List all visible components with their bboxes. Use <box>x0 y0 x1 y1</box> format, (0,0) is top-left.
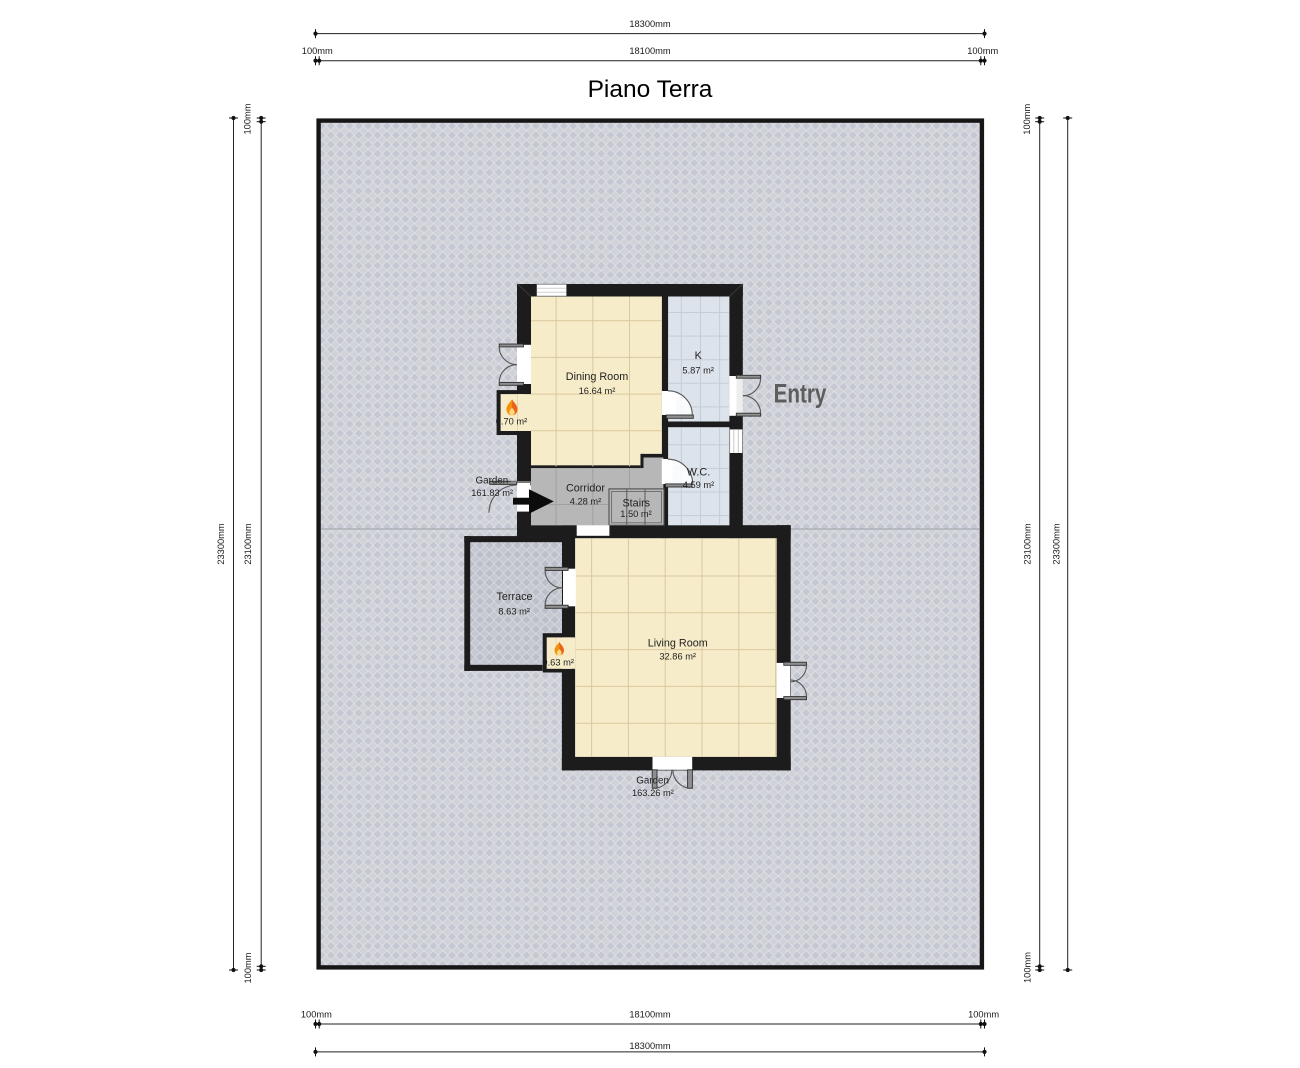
svg-text:18300mm: 18300mm <box>629 19 671 29</box>
svg-text:4.28 m²: 4.28 m² <box>570 497 602 507</box>
svg-text:Terrace: Terrace <box>496 591 532 603</box>
svg-text:23100mm: 23100mm <box>243 523 253 565</box>
svg-text:8.63 m²: 8.63 m² <box>498 607 530 617</box>
svg-text:163.26 m²: 163.26 m² <box>632 788 674 798</box>
svg-text:Garden: Garden <box>476 476 509 487</box>
svg-text:0.70 m²: 0.70 m² <box>496 416 528 426</box>
svg-text:100mm: 100mm <box>301 1009 332 1019</box>
svg-text:K: K <box>695 350 703 362</box>
svg-text:100mm: 100mm <box>243 952 253 983</box>
svg-text:23300mm: 23300mm <box>1052 523 1062 565</box>
svg-text:18100mm: 18100mm <box>629 46 671 56</box>
svg-text:100mm: 100mm <box>1023 952 1033 983</box>
svg-text:100mm: 100mm <box>243 103 253 134</box>
svg-text:Piano Terra: Piano Terra <box>588 76 713 103</box>
svg-text:100mm: 100mm <box>968 1009 999 1019</box>
svg-text:W.C.: W.C. <box>687 467 710 479</box>
svg-text:100mm: 100mm <box>1022 103 1032 134</box>
svg-text:Entry: Entry <box>774 379 827 409</box>
svg-text:23100mm: 23100mm <box>1023 523 1033 565</box>
svg-text:100mm: 100mm <box>967 46 998 56</box>
svg-text:18100mm: 18100mm <box>629 1009 671 1019</box>
svg-text:Dining Room: Dining Room <box>566 371 628 383</box>
svg-text:1.50 m²: 1.50 m² <box>620 509 652 519</box>
svg-text:Garden: Garden <box>636 776 669 787</box>
svg-text:Corridor: Corridor <box>566 483 605 495</box>
svg-text:16.64 m²: 16.64 m² <box>579 386 616 396</box>
svg-text:Stairs: Stairs <box>622 498 650 510</box>
svg-text:161.83 m²: 161.83 m² <box>471 488 513 498</box>
svg-text:4.59 m²: 4.59 m² <box>683 480 715 490</box>
svg-text:Living Room: Living Room <box>648 637 708 649</box>
svg-text:32.86 m²: 32.86 m² <box>659 652 696 662</box>
svg-text:23300mm: 23300mm <box>216 523 226 565</box>
svg-text:0.63 m²: 0.63 m² <box>542 658 574 668</box>
svg-text:5.87 m²: 5.87 m² <box>682 365 714 375</box>
svg-text:18300mm: 18300mm <box>629 1041 671 1051</box>
svg-text:100mm: 100mm <box>302 46 333 56</box>
